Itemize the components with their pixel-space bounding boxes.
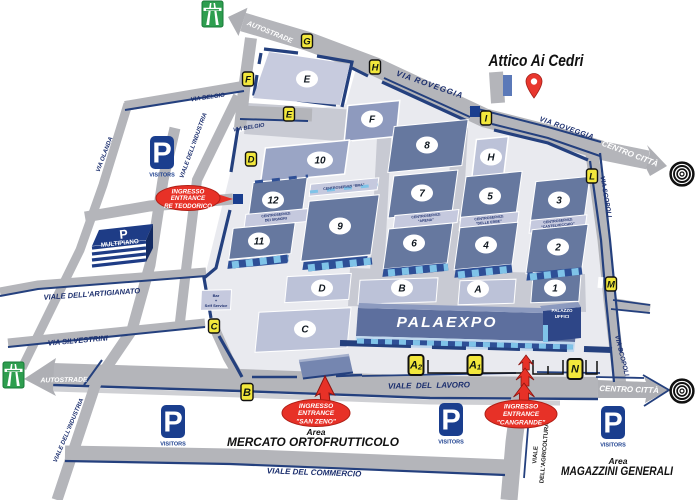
svg-text:E: E: [286, 109, 293, 120]
svg-text:AUTOSTRADE: AUTOSTRADE: [39, 377, 88, 385]
svg-text:H: H: [372, 62, 380, 73]
svg-text:VIALE DEL LAVORO: VIALE DEL LAVORO: [388, 380, 471, 390]
svg-text:P: P: [441, 404, 460, 436]
svg-text:B: B: [398, 284, 405, 295]
svg-text:Self Service: Self Service: [205, 303, 228, 308]
svg-text:3: 3: [556, 196, 562, 207]
svg-text:P: P: [603, 407, 622, 439]
svg-text:VISITORS: VISITORS: [438, 440, 464, 446]
svg-text:PALAZZO: PALAZZO: [552, 308, 573, 313]
svg-text:C: C: [211, 321, 218, 332]
svg-text:4: 4: [482, 241, 489, 252]
svg-text:MERCATO ORTOFRUTTICOLO: MERCATO ORTOFRUTTICOLO: [227, 435, 400, 449]
svg-text:INGRESSO: INGRESSO: [299, 403, 333, 410]
svg-text:VISITORS: VISITORS: [160, 442, 186, 448]
svg-text:ENTRANCE: ENTRANCE: [298, 410, 335, 417]
svg-text:D: D: [318, 284, 325, 295]
svg-text:G: G: [303, 36, 311, 47]
svg-text:VISITORS: VISITORS: [600, 443, 626, 449]
svg-text:MAGAZZINI GENERALI: MAGAZZINI GENERALI: [561, 464, 674, 478]
svg-text:L: L: [589, 171, 595, 182]
svg-text:ENTRANCE: ENTRANCE: [503, 411, 540, 418]
svg-text:8: 8: [424, 141, 430, 152]
svg-text:UFFICI: UFFICI: [555, 314, 570, 319]
svg-text:N: N: [571, 363, 580, 375]
svg-text:5: 5: [487, 192, 493, 203]
svg-text:2: 2: [554, 243, 561, 254]
svg-text:F: F: [245, 74, 251, 85]
svg-text:9: 9: [337, 222, 343, 233]
svg-text:C: C: [301, 325, 309, 336]
svg-text:PALAEXPO: PALAEXPO: [397, 314, 498, 331]
svg-text:RE TEODORICO: RE TEODORICO: [164, 203, 212, 210]
svg-text:I: I: [485, 113, 488, 124]
svg-text:Attico Ai Cedri: Attico Ai Cedri: [488, 51, 585, 70]
svg-text:M: M: [607, 279, 616, 290]
svg-text:P: P: [119, 227, 129, 242]
svg-text:6: 6: [411, 239, 417, 250]
svg-text:7: 7: [419, 189, 425, 200]
svg-text:P: P: [163, 406, 182, 438]
svg-text:A: A: [473, 285, 481, 296]
svg-text:E: E: [304, 75, 311, 86]
svg-text:VISITORS: VISITORS: [149, 173, 175, 179]
svg-text:"SAN ZENO": "SAN ZENO": [296, 418, 337, 425]
svg-text:INGRESSO: INGRESSO: [504, 404, 538, 411]
svg-text:P: P: [152, 137, 171, 169]
svg-text:F: F: [369, 115, 376, 126]
svg-text:12: 12: [267, 196, 279, 207]
svg-text:B: B: [243, 387, 251, 399]
svg-text:H: H: [487, 153, 495, 164]
svg-text:ENTRANCE: ENTRANCE: [171, 195, 206, 202]
svg-text:10: 10: [314, 156, 326, 167]
svg-text:"CANGRANDE": "CANGRANDE": [497, 420, 546, 427]
svg-text:D: D: [248, 154, 255, 165]
svg-text:11: 11: [254, 237, 265, 248]
svg-text:1: 1: [552, 284, 558, 295]
